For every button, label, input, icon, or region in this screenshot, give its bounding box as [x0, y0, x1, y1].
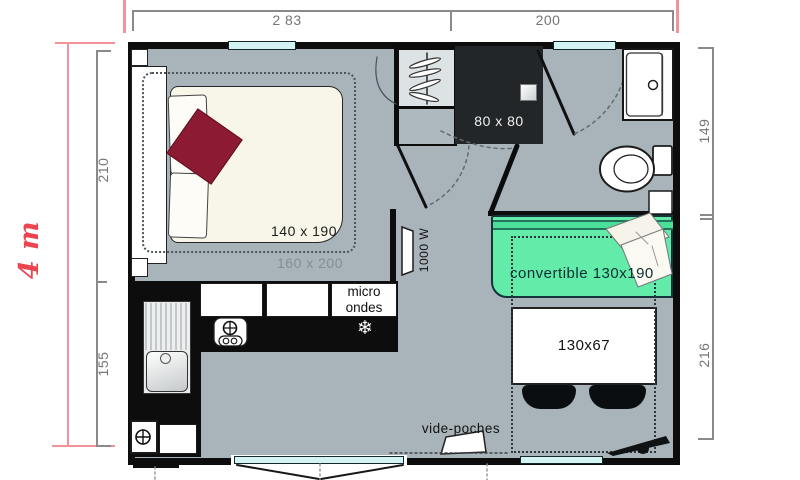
wardrobe-shelf [399, 109, 454, 144]
right-tick-bottom [698, 438, 714, 440]
dim-height-bottom-right: 216 [696, 330, 712, 380]
water-heater [130, 420, 158, 454]
pocket-label: vide-poches [415, 421, 507, 437]
kitchen-cabinet-1 [200, 283, 263, 317]
bay-window-opening [237, 465, 403, 479]
shower-size-label: 80 x 80 [455, 113, 543, 129]
pink-tick-top-left [123, 0, 126, 33]
floor-plan: 2 83 200 4 m 210 155 149 216 140 x 190 1… [0, 0, 800, 480]
shower-drain [520, 84, 537, 101]
freezer-icon: ❄ [350, 317, 380, 341]
kitchen-cabinet-2 [266, 283, 329, 317]
entry-door-window [520, 456, 603, 464]
dim-height-top-right: 149 [696, 106, 712, 156]
bay-window [234, 456, 404, 464]
bedside-niche-bottom [131, 258, 148, 277]
bedside-niche-top [131, 49, 148, 66]
entry-step [133, 459, 179, 468]
microwave-label-line2: ondes [332, 300, 396, 316]
pink-dimension-line [67, 43, 69, 447]
right-tick-mid-a [700, 214, 714, 216]
top-dimension-tick-left [132, 10, 134, 31]
right-dimension-line [712, 47, 714, 440]
bed-size-label: 140 x 190 [225, 223, 337, 239]
bathroom-window [553, 41, 616, 50]
bedroom-living-wall [390, 209, 396, 282]
bed-zone-label: 160 x 200 [260, 255, 360, 271]
wardrobe-hanging-area [399, 50, 454, 106]
left-tick-mid [96, 281, 107, 283]
right-tick-mid-b [700, 218, 714, 220]
sofa-label: convertible 130x190 [510, 266, 670, 282]
microwave-label-line1: micro [332, 284, 396, 300]
top-dimension-tick-mid [450, 10, 452, 31]
top-dimension-tick-right [672, 10, 674, 31]
dim-height-bottom-left: 155 [95, 339, 111, 389]
pink-tick-top-right [676, 0, 679, 33]
dim-total-height: 4 m [10, 210, 50, 290]
heater-label: 1000 W [416, 220, 432, 280]
left-tick-top [96, 50, 111, 52]
sink-drain [160, 353, 171, 364]
bedroom-window [228, 41, 296, 50]
dim-width-right: 200 [498, 12, 598, 28]
dim-width-left: 2 83 [237, 12, 337, 28]
dim-height-top-left: 210 [95, 145, 111, 195]
sofa-backrest [493, 220, 673, 230]
sink-draining-board [145, 303, 189, 350]
microwave: micro ondes [331, 283, 397, 317]
right-tick-top [698, 47, 714, 49]
left-tick-bottom [96, 445, 111, 447]
kitchen-unit-bottom [159, 424, 197, 454]
pink-tick-top [55, 42, 115, 44]
